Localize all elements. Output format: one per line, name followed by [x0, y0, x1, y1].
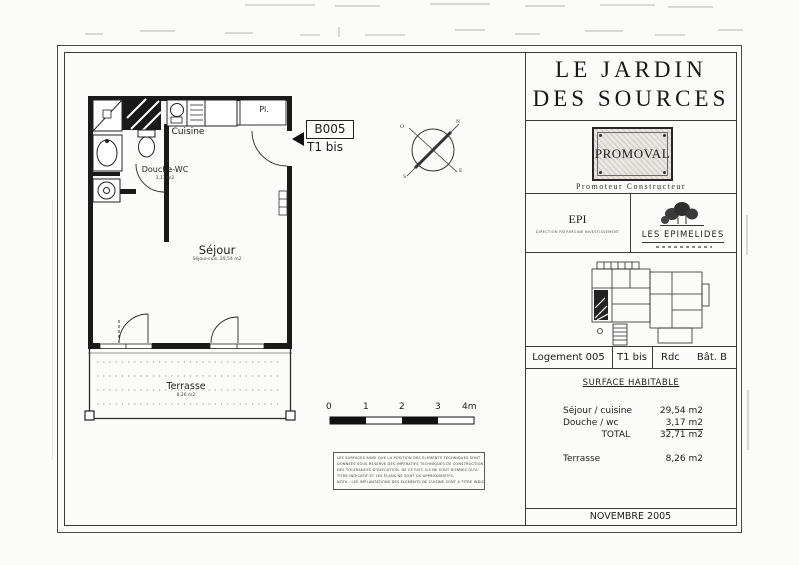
- surface-value: 8,26 m2: [666, 454, 703, 464]
- epimelides-logo-icon: [660, 202, 704, 226]
- surface-label: Séjour / cuisine: [563, 406, 632, 416]
- room-label-terrace: Terrasse: [156, 381, 216, 392]
- surface-value: 32,71 m2: [660, 430, 703, 440]
- room-area-shower-wc: 3,17 m2: [135, 176, 195, 181]
- plan-sheet: Cuisine Pl. Douche-WC 3,17 m2 Séjour Séj…: [0, 0, 799, 565]
- scale-bar: [330, 417, 474, 424]
- developer-plaque: PROMOVAL: [592, 127, 673, 181]
- surface-label: Terrasse: [563, 454, 600, 464]
- surface-table-title: SURFACE HABITABLE: [526, 378, 736, 388]
- developer-role: Promoteur Constructeur: [526, 182, 736, 191]
- surface-row: Terrasse 8,26 m2: [563, 454, 703, 465]
- date-label: NOVEMBRE 2005: [525, 508, 736, 525]
- partner-epi: EPI: [525, 212, 630, 227]
- surface-value: 3,17 m2: [666, 418, 703, 430]
- surface-label: Douche / wc: [563, 418, 618, 428]
- unit-row-logement: Logement 005: [525, 347, 612, 367]
- scale-tick: 4m: [462, 402, 477, 412]
- room-area-living: Séjour-cuis. 29,54 m2: [177, 257, 257, 262]
- plaque-ornament-icon: [599, 171, 602, 174]
- developer-name: PROMOVAL: [595, 146, 670, 162]
- surface-row: Séjour / cuisine 29,54 m2: [563, 406, 703, 417]
- partner-epi-subtitle: DIRECTION PATRIMOINE INVESTISSEMENT: [525, 230, 630, 234]
- compass-o: O: [400, 124, 404, 130]
- room-label-shower-wc: Douche-WC: [135, 165, 195, 174]
- unit-code-tag: B005: [306, 120, 354, 139]
- compass-n: N: [456, 119, 460, 125]
- room-label-living: Séjour: [187, 243, 247, 257]
- plaque-ornament-icon: [663, 134, 666, 137]
- surface-row: Douche / wc 3,17 m2: [563, 418, 703, 429]
- key-plan: [592, 262, 709, 345]
- plaque-ornament-icon: [599, 134, 602, 137]
- sink-icon: [171, 104, 184, 117]
- project-title-line2: DES SOURCES: [526, 86, 736, 112]
- room-label-closet: Pl.: [244, 105, 284, 114]
- door-swings: [119, 131, 287, 343]
- entrance-arrow-icon: [292, 132, 304, 146]
- project-title-line1: LE JARDIN: [526, 57, 736, 83]
- room-area-terrace: 8,26 m2: [156, 393, 216, 398]
- radiator-icon: [279, 191, 287, 215]
- notes-box: LES SURFACES AINSI QUE LA POSITION DES E…: [333, 452, 485, 490]
- scale-tick: 0: [326, 402, 332, 412]
- entrance-door-arc: [252, 131, 287, 166]
- duct-box: [127, 99, 161, 130]
- compass-e: E: [459, 168, 462, 174]
- note-line: NOTA : LES IMPLANTATIONS DES ELEMENTS DE…: [337, 479, 481, 485]
- scale-tick: 3: [435, 402, 441, 412]
- room-label-cuisine: Cuisine: [168, 127, 208, 137]
- compass-s: S: [403, 174, 406, 180]
- toilet-icon: [138, 130, 155, 137]
- developer-plaque-inner: PROMOVAL: [597, 132, 668, 176]
- partner-epimelides: LES EPIMELIDES: [632, 230, 734, 240]
- scale-tick: 2: [399, 402, 405, 412]
- terrace-door-right-arc: [211, 317, 238, 343]
- unit-row-building: Bât. B: [697, 352, 727, 363]
- compass-icon: [407, 124, 459, 176]
- unit-row-level-building: Rdc Bât. B: [652, 347, 736, 367]
- unit-type-tag: T1 bis: [307, 140, 343, 154]
- unit-row-level: Rdc: [661, 352, 680, 363]
- plaque-ornament-icon: [663, 171, 666, 174]
- scale-tick: 1: [363, 402, 369, 412]
- surface-label: TOTAL: [563, 430, 630, 440]
- terrace-door-left-arc: [119, 314, 148, 343]
- unit-row-type: T1 bis: [612, 347, 652, 367]
- surface-row-total: TOTAL 32,71 m2: [563, 430, 703, 441]
- surface-value: 29,54 m2: [660, 406, 703, 416]
- partner-epimelides-tagline: [656, 246, 712, 248]
- partner-epimelides-text: LES EPIMELIDES: [642, 230, 724, 243]
